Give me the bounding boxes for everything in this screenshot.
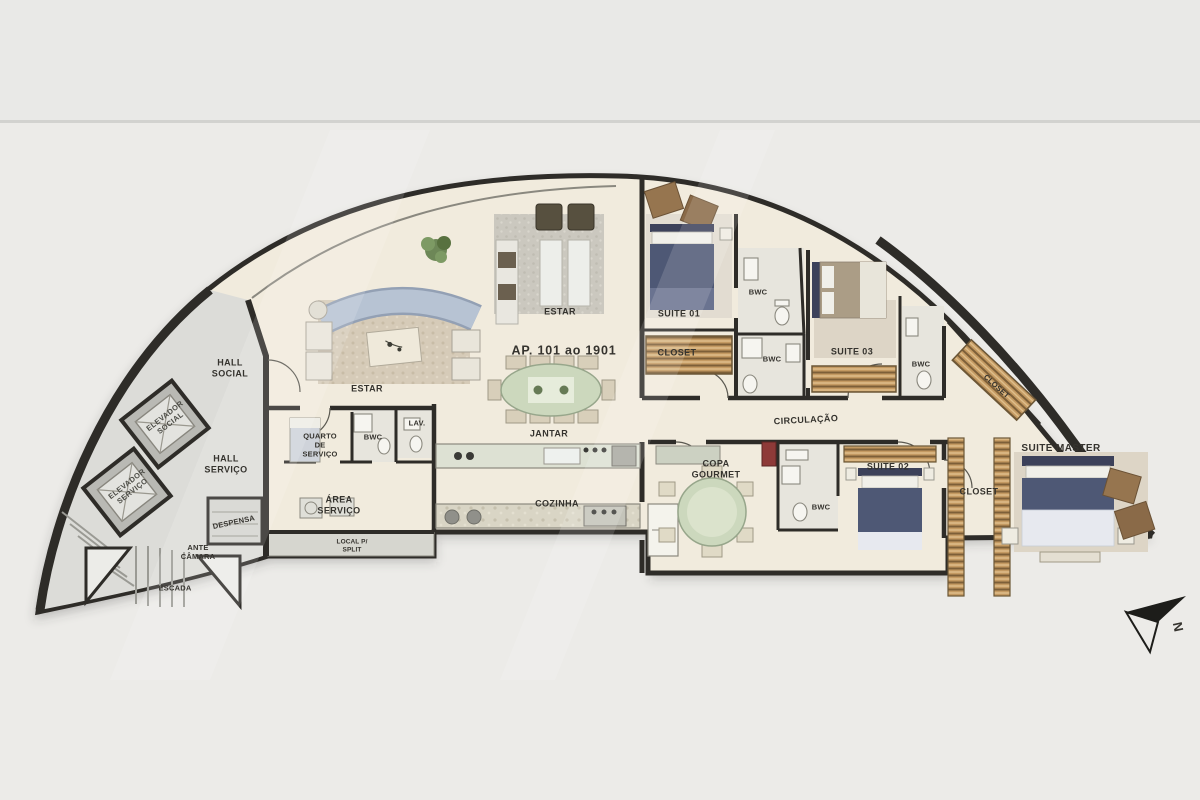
dining-furniture <box>488 356 615 423</box>
label-estar-1: ESTAR <box>351 384 383 395</box>
label-suite-01: SUITE 01 <box>658 309 700 320</box>
label-lav: LAV. <box>409 420 426 429</box>
label-ante-camara: ANTE CÂMARA <box>181 544 216 562</box>
suite03-furniture <box>812 262 896 392</box>
label-cozinha: COZINHA <box>535 499 579 510</box>
label-closet-master: CLOSET <box>960 487 999 498</box>
label-copa-gourmet: COPA GOURMET <box>692 458 741 479</box>
label-hall-servico: HALL SERVIÇO <box>204 453 247 474</box>
label-jantar: JANTAR <box>530 429 568 440</box>
label-suite-03: SUITE 03 <box>831 347 873 358</box>
label-bwc-suite03: BWC <box>912 361 931 370</box>
label-suite-master: SUITE MASTER <box>1021 443 1100 455</box>
label-closet-suite01: CLOSET <box>658 348 697 359</box>
label-bwc-1: BWC <box>749 289 768 298</box>
label-local-split: LOCAL P/ SPLIT <box>336 538 367 553</box>
label-bwc-2: BWC <box>763 356 782 365</box>
label-bwc-suite02: BWC <box>812 504 831 513</box>
label-apartment-title: AP. 101 ao 1901 <box>512 344 617 359</box>
label-quarto-servico: QUARTO DE SERVIÇO <box>302 433 337 460</box>
label-suite-02: SUITE 02 <box>867 462 909 473</box>
label-hall-social: HALL SOCIAL <box>212 357 248 378</box>
label-estar-2: ESTAR <box>544 307 576 318</box>
label-escada: ESCADA <box>159 585 192 594</box>
floor-plan-page: HALL SOCIAL ELEVADOR SOCIAL ELEVADOR SER… <box>0 0 1200 800</box>
label-bwc-servico: BWC <box>364 434 383 443</box>
label-area-servico: ÁREA SERVIÇO <box>317 494 360 515</box>
